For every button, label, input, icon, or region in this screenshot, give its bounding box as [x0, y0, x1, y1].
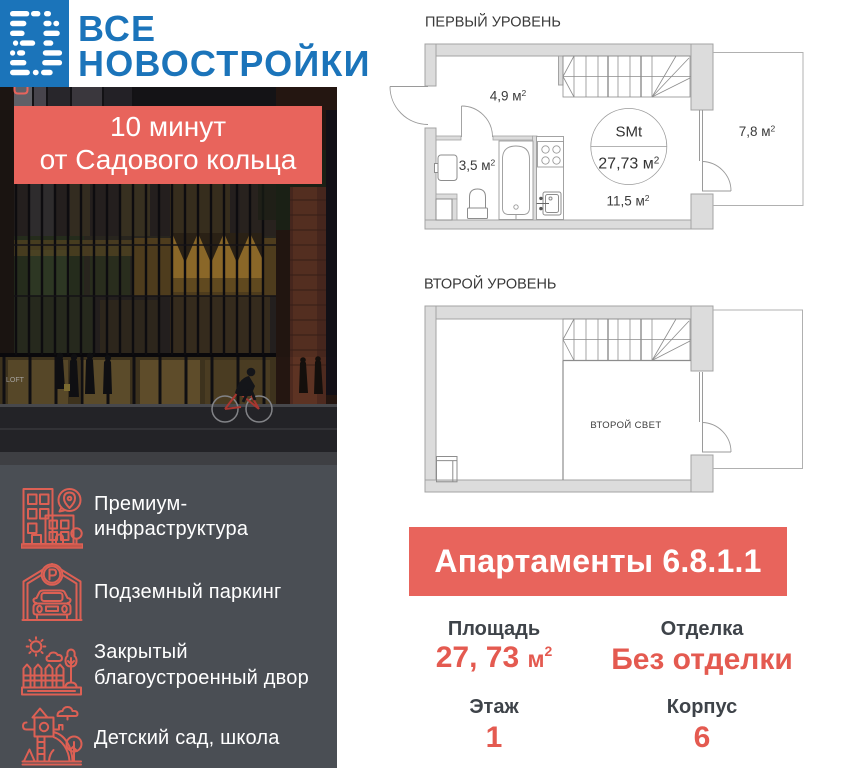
svg-text:27,73 м2: 27,73 м2: [598, 156, 659, 173]
svg-text:7,8 м2: 7,8 м2: [739, 124, 776, 140]
svg-text:3,5 м2: 3,5 м2: [459, 158, 496, 174]
svg-text:ВТОРОЙ УРОВЕНЬ: ВТОРОЙ УРОВЕНЬ: [424, 275, 556, 293]
svg-text:ПЕРВЫЙ УРОВЕНЬ: ПЕРВЫЙ УРОВЕНЬ: [425, 13, 561, 31]
svg-text:11,5 м2: 11,5 м2: [606, 193, 649, 209]
svg-text:SMt: SMt: [615, 124, 643, 141]
svg-text:4,9 м2: 4,9 м2: [490, 88, 527, 104]
svg-text:ВТОРОЙ СВЕТ: ВТОРОЙ СВЕТ: [590, 419, 661, 431]
svg-text:LOFT: LOFT: [6, 377, 25, 384]
